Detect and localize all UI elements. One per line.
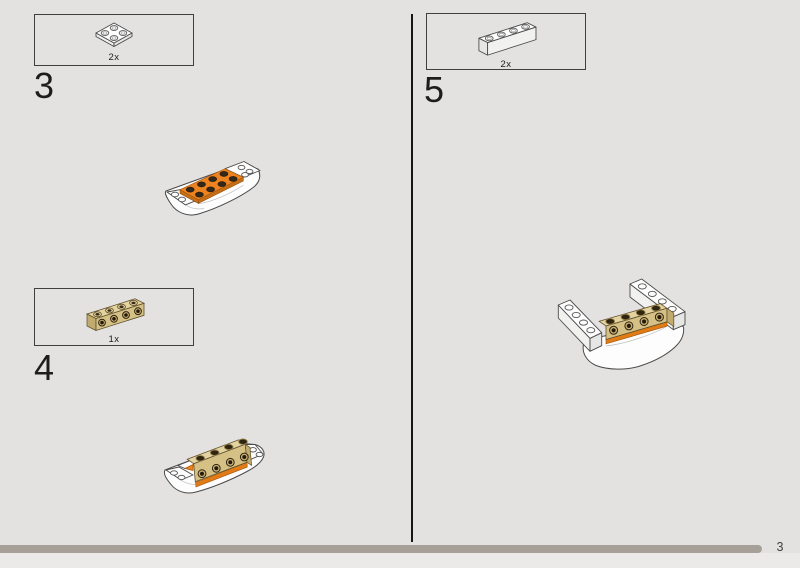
step3-assembly-illustration	[158, 148, 274, 228]
step3-part-thumbnail-white-2x2-plate	[88, 18, 140, 52]
step3-number: 3	[34, 68, 54, 104]
step4-part-count: 1x	[108, 335, 119, 345]
page-number: 3	[770, 540, 790, 554]
instruction-page: 2x 3	[0, 0, 800, 568]
white-1x4-brick-left	[558, 300, 601, 351]
progress-bar	[0, 545, 762, 553]
step4-part-thumbnail-tan-1x4-brick	[82, 290, 146, 334]
step5-assembly-illustration	[556, 276, 692, 380]
column-divider	[411, 14, 413, 542]
step5-number: 5	[424, 72, 444, 108]
step4-assembly-illustration	[158, 423, 274, 511]
step5-parts-box: 2x	[426, 13, 586, 70]
step3-part-count: 2x	[108, 53, 119, 63]
step4-number: 4	[34, 350, 54, 386]
footer-strip	[0, 553, 800, 568]
step5-part-count: 2x	[500, 60, 511, 70]
step5-part-thumbnail-white-1x4-brick	[473, 14, 539, 59]
step3-parts-box: 2x	[34, 14, 194, 66]
step4-parts-box: 1x	[34, 288, 194, 346]
